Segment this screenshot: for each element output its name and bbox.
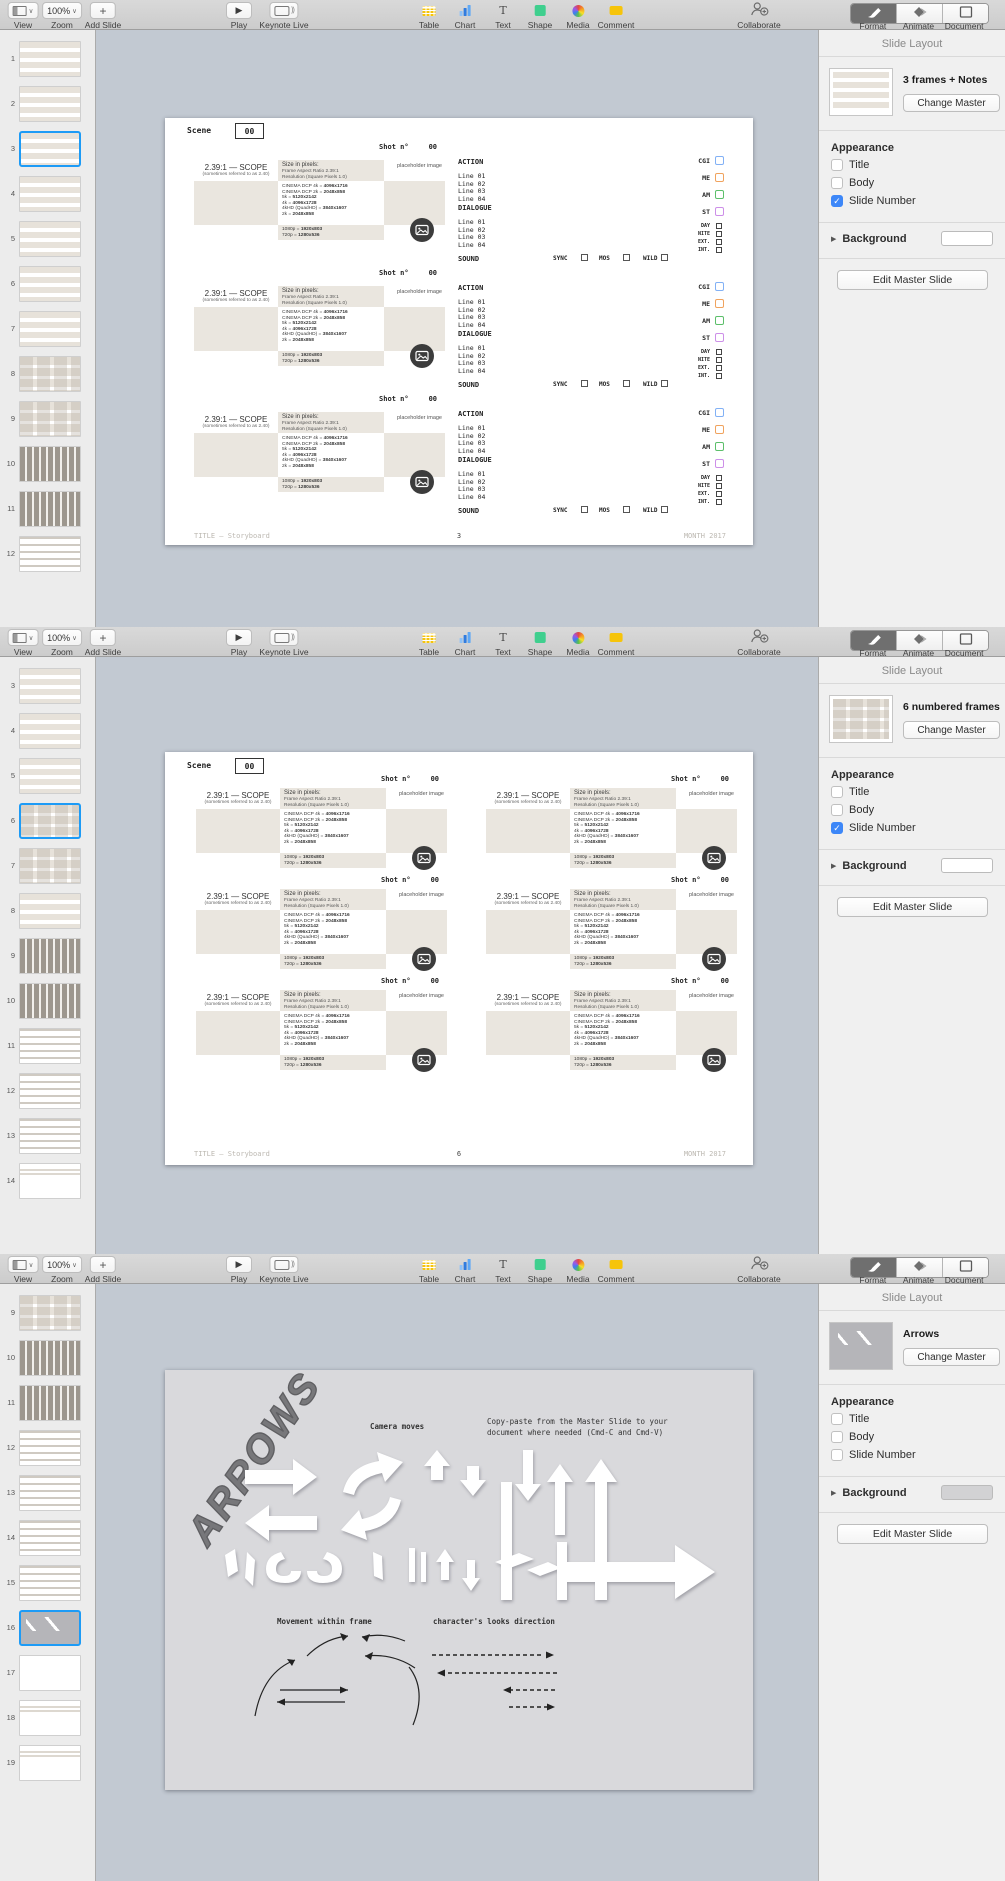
insert-table[interactable]: Table [419,2,440,30]
storyboard-frame: 2.39:1 — SCOPE(sometimes referred to as … [486,889,737,969]
frame-cell [194,477,278,492]
insert-shape[interactable]: Shape [528,1256,553,1284]
play-button[interactable]: ▶ [226,629,252,646]
collaborate[interactable]: Collaborate [737,629,780,657]
placeholder-label: placeholder image [386,990,447,999]
insert-comment[interactable]: Comment [598,2,635,30]
tag-small-checkbox[interactable] [716,231,722,237]
media-icon [572,632,584,644]
slide-thumbnail-row: 16 [0,1605,95,1650]
sound-option-checkbox[interactable] [661,506,668,513]
zoom[interactable]: 100%∨Zoom [42,629,82,657]
slide-thumbnail-1[interactable] [19,41,81,77]
resolution-list-footer: 1080p = 1920x803720p = 1280x536 [280,853,386,866]
camera-icon [702,846,726,870]
frame-cell: 2.39:1 — SCOPE(sometimes referred to as … [194,412,278,433]
play[interactable]: ▶Play [226,629,252,657]
insert-text-button[interactable]: T [495,1256,510,1273]
insert-media-button[interactable] [568,1256,588,1273]
master-thumbnail[interactable] [829,1322,893,1370]
zoom-button[interactable]: 100%∨ [42,1256,82,1273]
slide-thumbnail-11[interactable] [19,491,81,527]
frame-cell: 2.39:1 — SCOPE(sometimes referred to as … [194,286,278,307]
aspect-subtitle: (sometimes referred to as 2.40) [486,1002,570,1007]
scene-value-box[interactable]: 00 [235,123,264,139]
slide-thumbnail-19[interactable] [19,1745,81,1781]
tag-checkbox[interactable] [715,442,724,451]
slide-thumbnail-12[interactable] [19,1073,81,1109]
action-line: Line 04 [458,447,485,455]
slide-thumbnail-15[interactable] [19,1565,81,1601]
tag-label: CGI [660,409,710,417]
resolution-line: 720p = 1280x536 [574,962,676,968]
slide-thumbnail-row: 7 [0,843,95,888]
tag-small-checkbox[interactable] [716,499,722,505]
frame-cell: placeholder image [384,286,445,307]
insert-text-button[interactable]: T [495,629,510,646]
sound-option-checkbox[interactable] [581,380,588,387]
slide-number-label: 9 [2,414,15,423]
tag-small-checkbox[interactable] [716,483,722,489]
tag-small-checkbox[interactable] [716,349,722,355]
play[interactable]: ▶Play [226,2,252,30]
shot-value: 00 [721,775,729,783]
slide-thumbnail-row: 3 [0,126,95,171]
zoom-button[interactable]: 100%∨ [42,629,82,646]
slide-thumbnail-6[interactable] [19,803,81,839]
insert-shape[interactable]: Shape [528,629,553,657]
tag-small-checkbox[interactable] [716,491,722,497]
tag-checkbox[interactable] [715,156,724,165]
slide-thumbnail-4[interactable] [19,176,81,212]
insert-text-label: Text [495,647,511,657]
shot-label: Shot n° [379,269,409,277]
zoom[interactable]: 100%∨Zoom [42,1256,82,1284]
tag-checkbox[interactable] [715,299,724,308]
appearance-option-body: Body [831,1431,874,1443]
frame-cell: placeholder image [676,990,737,1011]
sound-option-checkbox[interactable] [623,380,630,387]
text-icon: T [499,631,506,644]
collaborate-button[interactable] [744,629,774,646]
sound-option-checkbox[interactable] [623,506,630,513]
play[interactable]: ▶Play [226,1256,252,1284]
insert-chart-button[interactable] [455,2,474,19]
slide-thumbnail-row: 7 [0,306,95,351]
slide-thumbnail-8[interactable] [19,893,81,929]
checkbox-body[interactable] [831,804,843,816]
slide-thumbnail-5[interactable] [19,221,81,257]
action-label: ACTION [458,410,483,418]
tag-small-checkbox[interactable] [716,475,722,481]
slide-canvas: ARROWSCamera movesCopy-paste from the Ma… [96,1284,818,1881]
insert-media[interactable]: Media [566,2,589,30]
tag-small-label: EXT. [660,491,710,497]
resolution-list: CINEMA DCP 4k = 4096x1716CINEMA DCP 2k =… [570,1011,676,1047]
slide-thumbnail-9[interactable] [19,938,81,974]
resolution-list: CINEMA DCP 4k = 4096x1716CINEMA DCP 2k =… [278,181,384,217]
frame-cell [194,307,278,351]
shot-row: Shot n°00 [194,395,445,403]
keynote-window-3: ∨View100%∨Zoom+Add Slide▶Play))Keynote L… [0,1254,1005,1881]
tag-small-checkbox[interactable] [716,239,722,245]
edit-master-slide-button[interactable]: Edit Master Slide [837,270,988,290]
collaborate[interactable]: Collaborate [737,2,780,30]
slide-thumbnail-9[interactable] [19,1295,81,1331]
change-master-button[interactable]: Change Master [903,721,1000,739]
tag-checkbox[interactable] [715,316,724,325]
slide-thumbnail-10[interactable] [19,446,81,482]
tab-document-icon [959,632,973,650]
slide-thumbnail-10[interactable] [19,1340,81,1376]
shot-value: 00 [431,977,439,985]
insert-shape-button[interactable] [531,2,550,19]
keynote-live-button[interactable]: )) [269,2,299,19]
appearance-heading: Appearance [831,142,894,154]
insert-media-button[interactable] [568,2,588,19]
frame-cell: placeholder image [384,412,445,433]
slide-thumbnail-14[interactable] [19,1520,81,1556]
insert-comment-button[interactable] [606,2,627,19]
tag-label: ME [660,174,710,182]
tab-animate-icon [913,632,927,650]
insert-table-button[interactable] [419,1256,440,1273]
movement-label: Movement within frame [277,1617,372,1626]
view-button[interactable]: ∨ [8,2,39,19]
looks-label: character's looks direction [433,1617,555,1626]
add-slide-button[interactable]: + [90,629,116,646]
sound-option-label: SYNC [553,507,567,514]
sound-option-checkbox[interactable] [581,506,588,513]
insert-media[interactable]: Media [566,1256,589,1284]
sound-option-checkbox[interactable] [661,380,668,387]
slide-thumbnail-3[interactable] [19,131,81,167]
background-color-well[interactable] [941,1485,993,1500]
appearance-option-slide-number: ✓Slide Number [831,822,916,834]
master-thumbnail[interactable] [829,68,893,116]
tag-checkbox[interactable] [715,425,724,434]
background-label: Background [842,1487,906,1499]
storyboard-frame: 2.39:1 — SCOPE(sometimes referred to as … [196,889,447,969]
shot-label: Shot n° [381,775,411,783]
disclosure-triangle-icon[interactable]: ▶ [831,235,836,243]
tag-small-checkbox[interactable] [716,365,722,371]
frame-cell: 1080p = 1920x803720p = 1280x536 [278,225,384,240]
sound-option-checkbox[interactable] [623,254,630,261]
storyboard-frame: 2.39:1 — SCOPE(sometimes referred to as … [486,788,737,868]
size-header-line: Size in pixels: [284,992,386,999]
resolution-line: 2k = 2048x858 [282,464,384,470]
slide-thumbnail-10[interactable] [19,983,81,1019]
camera-icon [410,344,434,368]
plus-icon: + [99,6,106,16]
size-header-line: Size in pixels: [574,891,676,898]
keynote-live-icon [274,6,289,16]
size-header-line: Size in pixels: [282,162,384,169]
insert-media-button[interactable] [568,629,588,646]
insert-comment-button[interactable] [606,629,627,646]
insert-table[interactable]: Table [419,1256,440,1284]
slide-thumbnail-11[interactable] [19,1028,81,1064]
slide-thumbnail-11[interactable] [19,1385,81,1421]
appearance-option-label: Body [849,1431,874,1443]
insert-table-button[interactable] [419,2,440,19]
slide-thumbnail-7[interactable] [19,848,81,884]
slide-number-label: 2 [2,99,15,108]
change-master-button[interactable]: Change Master [903,94,1000,112]
background-label: Background [842,233,906,245]
slide-number-label: 8 [2,906,15,915]
keynote-live[interactable]: ))Keynote Live [259,629,308,657]
slide-canvas: Scene00Shot n°002.39:1 — SCOPE(sometimes… [96,657,818,1254]
keynote-live[interactable]: ))Keynote Live [259,1256,308,1284]
sound-option-label: SYNC [553,255,567,262]
slide-thumbnail-17[interactable] [19,1655,81,1691]
insert-shape-button[interactable] [531,1256,550,1273]
table-icon [423,633,436,643]
insert-media-label: Media [566,647,589,657]
collaborate[interactable]: Collaborate [737,1256,780,1284]
background-color-well[interactable] [941,231,993,246]
background-color-well[interactable] [941,858,993,873]
text-icon: T [499,1258,506,1271]
view[interactable]: ∨View [8,629,39,657]
resolution-line: 720p = 1280x536 [282,233,384,239]
insert-shape-label: Shape [528,20,553,30]
master-thumbnail[interactable] [829,695,893,743]
tag-checkbox[interactable] [715,333,724,342]
add-slide[interactable]: +Add Slide [85,1256,121,1284]
insert-table-label: Table [419,647,439,657]
slide-thumbnail-2[interactable] [19,86,81,122]
insert-chart-button[interactable] [455,629,474,646]
placeholder-label: placeholder image [384,286,445,295]
insert-comment-button[interactable] [606,1256,627,1273]
slide-number-label: 11 [2,1041,15,1050]
add-slide[interactable]: +Add Slide [85,2,121,30]
tag-checkbox[interactable] [715,459,724,468]
keynote-live-button[interactable]: )) [269,629,299,646]
slide-number-label: 4 [2,189,15,198]
slide-thumbnail-9[interactable] [19,401,81,437]
divider [819,885,1005,886]
resolution-list: CINEMA DCP 4k = 4096x1716CINEMA DCP 2k =… [280,1011,386,1047]
format-inspector: Slide Layout3 frames + NotesChange Maste… [818,30,1005,627]
shot-label: Shot n° [381,876,411,884]
view-button[interactable]: ∨ [8,1256,39,1273]
insert-table[interactable]: Table [419,629,440,657]
checkbox-title[interactable] [831,786,843,798]
resolution-line: 2k = 2048x858 [284,941,386,947]
slide-thumbnail-8[interactable] [19,356,81,392]
storyboard-frame: 2.39:1 — SCOPE(sometimes referred to as … [486,990,737,1070]
tab-animate-icon [913,1259,927,1277]
frame-cell [486,910,570,954]
frame-cell [196,1055,280,1070]
checkbox-body[interactable] [831,1431,843,1443]
slide-thumbnail-13[interactable] [19,1118,81,1154]
slide-number-label: 3 [2,681,15,690]
action-line: Line 04 [458,321,485,329]
slide-number-label: 3 [2,144,15,153]
keynote-live-button[interactable]: )) [269,1256,299,1273]
frame-cell: 2.39:1 — SCOPE(sometimes referred to as … [486,990,570,1011]
slide-thumbnail-16[interactable] [19,1610,81,1646]
collaborate-button[interactable] [744,2,774,19]
slide-number-label: 1 [2,54,15,63]
chart-icon [459,5,470,16]
checkbox-title[interactable] [831,159,843,171]
add-slide-button[interactable]: + [90,1256,116,1273]
insert-comment[interactable]: Comment [598,629,635,657]
placeholder-label: placeholder image [676,788,737,797]
sound-option-checkbox[interactable] [661,254,668,261]
slide-thumbnail-6[interactable] [19,266,81,302]
view[interactable]: ∨View [8,1256,39,1284]
tag-small-checkbox[interactable] [716,357,722,363]
slide-thumbnail-row: 12 [0,1068,95,1113]
divider [819,683,1005,684]
insert-table-button[interactable] [419,629,440,646]
edit-master-slide-button[interactable]: Edit Master Slide [837,897,988,917]
slide-thumbnail-row: 12 [0,1425,95,1470]
tag-label: ME [660,300,710,308]
slide-thumbnail-5[interactable] [19,758,81,794]
tag-checkbox[interactable] [715,408,724,417]
slide-thumbnail-7[interactable] [19,311,81,347]
insert-text-button[interactable]: T [495,2,510,19]
insert-media[interactable]: Media [566,629,589,657]
divider [819,56,1005,57]
checkbox-slide-number[interactable]: ✓ [831,822,843,834]
slide-thumbnail-13[interactable] [19,1475,81,1511]
insert-chart[interactable]: Chart [455,629,476,657]
edit-master-slide-button[interactable]: Edit Master Slide [837,1524,988,1544]
slide-number-label: 11 [2,504,15,513]
insert-chart-button[interactable] [455,1256,474,1273]
slide-thumbnail-3[interactable] [19,668,81,704]
scene-value-box[interactable]: 00 [235,758,264,774]
add-slide-button[interactable]: + [90,2,116,19]
scene-value: 00 [245,127,255,136]
action-line: Line 04 [458,195,485,203]
add-slide[interactable]: +Add Slide [85,629,121,657]
tag-checkbox[interactable] [715,207,724,216]
play-button[interactable]: ▶ [226,2,252,19]
slide-number-label: 10 [2,1353,15,1362]
shot-label: Shot n° [379,143,409,151]
frame-cell [194,351,278,366]
tag-small-label: DAY [660,349,710,355]
frame-cell: 1080p = 1920x803720p = 1280x536 [570,853,676,868]
insert-chart[interactable]: Chart [455,1256,476,1284]
slide-thumbnail-4[interactable] [19,713,81,749]
tag-label: ST [660,208,710,216]
insert-media-label: Media [566,20,589,30]
insert-table-label: Table [419,1274,439,1284]
checkbox-body[interactable] [831,177,843,189]
sound-option-label: MOS [599,381,610,388]
zoom-button[interactable]: 100%∨ [42,2,82,19]
size-header-line: Resolution (Square Pixels 1.0) [284,904,386,910]
frame-cell: 1080p = 1920x803720p = 1280x536 [280,954,386,969]
zoom[interactable]: 100%∨Zoom [42,2,82,30]
size-header: Size in pixels:Frame Aspect Ratio 2.39:1… [278,160,384,180]
insert-text[interactable]: TText [495,629,511,657]
copy-paste-note-line: document where needed (Cmd-C and Cmd-V) [487,1427,668,1438]
collaborate-icon [748,1,770,21]
insert-text[interactable]: TText [495,2,511,30]
disclosure-triangle-icon[interactable]: ▶ [831,862,836,870]
collaborate-button[interactable] [744,1256,774,1273]
tag-checkbox[interactable] [715,282,724,291]
tag-label: ST [660,334,710,342]
slide: Scene00Shot n°002.39:1 — SCOPE(sometimes… [165,118,753,545]
frame-cell: placeholder image [676,788,737,809]
storyboard-block: Shot n°002.39:1 — SCOPE(sometimes referr… [194,269,726,395]
view-button[interactable]: ∨ [8,629,39,646]
slide-thumbnail-12[interactable] [19,1430,81,1466]
slide-thumbnail-14[interactable] [19,1163,81,1199]
frame-cell: CINEMA DCP 4k = 4096x1716CINEMA DCP 2k =… [280,809,386,853]
size-header: Size in pixels:Frame Aspect Ratio 2.39:1… [570,990,676,1010]
frame-cell: Size in pixels:Frame Aspect Ratio 2.39:1… [280,990,386,1011]
view[interactable]: ∨View [8,2,39,30]
slide-thumbnail-12[interactable] [19,536,81,572]
change-master-button[interactable]: Change Master [903,1348,1000,1366]
appearance-option-label: Slide Number [849,1449,916,1461]
toolbar: ∨View100%∨Zoom+Add Slide▶Play))Keynote L… [0,627,1005,657]
appearance-option-slide-number: Slide Number [831,1449,916,1461]
checkbox-slide-number[interactable] [831,1449,843,1461]
insert-shape[interactable]: Shape [528,2,553,30]
text-icon: T [499,4,506,17]
tag-checkbox[interactable] [715,173,724,182]
format-inspector: Slide LayoutArrowsChange MasterAppearanc… [818,1284,1005,1881]
tag-small-label: INT. [660,373,710,379]
frame-cell: Size in pixels:Frame Aspect Ratio 2.39:1… [280,889,386,910]
play-button[interactable]: ▶ [226,1256,252,1273]
size-header-line: Resolution (Square Pixels 1.0) [282,175,384,181]
insert-chart-label: Chart [455,20,476,30]
checkbox-title[interactable] [831,1413,843,1425]
shot-value: 00 [431,775,439,783]
tag-checkbox[interactable] [715,190,724,199]
slide-thumbnail-row: 9 [0,933,95,978]
disclosure-triangle-icon[interactable]: ▶ [831,1489,836,1497]
keynote-live[interactable]: ))Keynote Live [259,2,308,30]
shot-row: Shot n°00 [196,775,447,783]
appearance-option-title: Title [831,786,869,798]
tag-small-checkbox[interactable] [716,373,722,379]
insert-shape-button[interactable] [531,629,550,646]
insert-chart[interactable]: Chart [455,2,476,30]
sound-option-checkbox[interactable] [581,254,588,261]
slide-thumbnail-row: 17 [0,1650,95,1695]
tag-small-checkbox[interactable] [716,223,722,229]
checkbox-slide-number[interactable]: ✓ [831,195,843,207]
tab-format-icon [867,5,881,23]
slide-thumbnail-18[interactable] [19,1700,81,1736]
insert-comment[interactable]: Comment [598,1256,635,1284]
slide-number-label: 14 [2,1176,15,1185]
copy-paste-note-line: Copy-paste from the Master Slide to your [487,1416,668,1427]
tag-small-checkbox[interactable] [716,247,722,253]
slide-number-label: 17 [2,1668,15,1677]
insert-text[interactable]: TText [495,1256,511,1284]
slide-number-label: 12 [2,1086,15,1095]
tag-label: ST [660,460,710,468]
